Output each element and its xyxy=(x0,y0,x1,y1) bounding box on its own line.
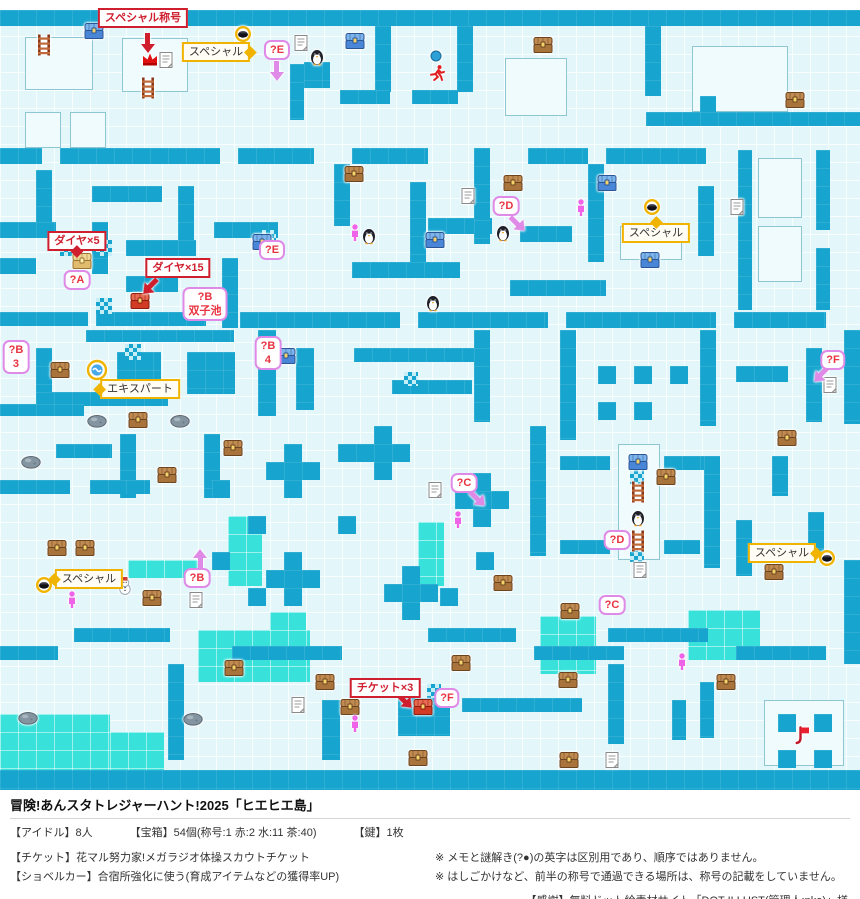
memo-icon xyxy=(429,482,442,498)
person-icon xyxy=(452,511,464,529)
chest-brown-icon xyxy=(76,540,95,557)
ladder-icon xyxy=(631,482,645,503)
maze-wall xyxy=(90,480,150,494)
maze-wall xyxy=(266,462,320,480)
chest-brown-icon xyxy=(657,469,676,486)
footer-left-column: 【チケット】花マル努力家!メガラジオ体操スカウトチケット 【ショベルカー】合宿所… xyxy=(10,846,435,887)
chest-brown-icon xyxy=(345,166,364,183)
callout-label: 4 xyxy=(261,353,276,367)
callout-label: ?B xyxy=(261,339,276,353)
callout-label: スペシャル xyxy=(62,572,116,586)
maze-wall xyxy=(212,552,230,570)
callout-label: ?E xyxy=(265,243,279,257)
chest-blue-icon xyxy=(426,232,445,249)
memo-icon xyxy=(292,697,305,713)
chest-brown-icon xyxy=(129,412,148,429)
callout-pink: ?C xyxy=(599,595,626,615)
maze-wall xyxy=(375,26,391,92)
maze-wall xyxy=(462,698,582,712)
maze-wall xyxy=(646,112,860,126)
callout-label: スペシャル称号 xyxy=(105,11,181,25)
maze-wall xyxy=(634,366,652,384)
maze-wall xyxy=(412,90,458,104)
maze-wall xyxy=(734,312,826,328)
chest-brown-icon xyxy=(51,362,70,379)
callout-pink: ?C xyxy=(451,473,478,493)
stat-key: 【鍵】1枚 xyxy=(354,827,404,839)
callout-pink: ?A xyxy=(64,270,91,290)
callout-label: ?E xyxy=(270,43,284,57)
maze-wall xyxy=(736,646,826,660)
note-2: ※ はしごかけなど、前半の称号で通過できる場所は、称号の記載をしていません。 xyxy=(435,868,850,884)
maze-wall xyxy=(428,628,516,642)
chest-brown-icon xyxy=(341,699,360,716)
callout-label: ?F xyxy=(826,353,839,367)
callout-pink: ?F xyxy=(434,688,459,708)
maze-wall xyxy=(457,26,473,92)
ladder-icon xyxy=(37,35,51,56)
callout-pink: ?B3 xyxy=(3,340,30,374)
footer-notes-column: ※ メモと謎解き(?●)の英字は区別用であり、順序ではありません。 ※ はしごか… xyxy=(435,846,850,887)
chest-brown-icon xyxy=(48,540,67,557)
person-icon xyxy=(676,653,688,671)
chest-brown-icon xyxy=(143,590,162,607)
treasure-map-image: スペシャル称号スペシャル?Eダイヤ×5?Aダイヤ×15?B双子池?E?B3エキス… xyxy=(0,0,860,790)
maze-wall xyxy=(304,62,330,88)
callout-pink: ?E xyxy=(264,40,290,60)
maze-wall xyxy=(60,148,220,164)
runner-icon xyxy=(428,65,446,82)
callout-yellow: スペシャル xyxy=(622,223,690,243)
person-icon xyxy=(349,715,361,733)
maze-wall xyxy=(608,628,708,642)
maze-wall xyxy=(672,700,686,740)
callout-label: ?D xyxy=(610,533,625,547)
maze-wall xyxy=(528,148,588,164)
maze-wall xyxy=(290,64,304,120)
callout-tail xyxy=(244,46,257,59)
expert-icon xyxy=(87,360,108,381)
maze-wall xyxy=(0,480,70,494)
chest-brown-icon xyxy=(316,674,335,691)
outlined-room xyxy=(758,226,802,282)
chest-blue-icon xyxy=(598,175,617,192)
callout-label: ?C xyxy=(605,598,620,612)
maze-wall xyxy=(700,96,716,112)
footer-columns: 【チケット】花マル努力家!メガラジオ体操スカウトチケット 【ショベルカー】合宿所… xyxy=(10,846,850,887)
dot-icon xyxy=(430,50,442,62)
chest-brown-icon xyxy=(494,575,513,592)
callout-label: ?D xyxy=(499,199,514,213)
chest-brown-icon xyxy=(786,92,805,109)
maze-wall xyxy=(560,330,576,440)
callout-pink: ?D xyxy=(604,530,631,550)
maze-wall xyxy=(844,330,860,424)
callout-label: スペシャル xyxy=(755,546,809,560)
callout-label: 3 xyxy=(9,357,24,371)
person-icon xyxy=(575,199,587,217)
callout-label: スペシャル xyxy=(629,226,683,240)
outlined-room xyxy=(25,37,93,90)
callout-yellow: スペシャル xyxy=(182,42,250,62)
maze-wall xyxy=(700,330,716,426)
map-footer: 冒険!あんスタトレジャーハント!2025「ヒエヒエ島」 【アイドル】8人 【宝箱… xyxy=(0,790,860,899)
callout-label: ?B xyxy=(9,343,24,357)
maze-wall xyxy=(520,226,572,242)
callout-red: チケット×3 xyxy=(350,678,421,698)
water-patch xyxy=(540,616,596,674)
maze-wall xyxy=(560,456,610,470)
chest-brown-icon xyxy=(559,672,578,689)
maze-wall xyxy=(440,588,458,606)
chest-brown-icon xyxy=(778,430,797,447)
rock-icon xyxy=(170,414,190,428)
callout-label: ダイヤ×15 xyxy=(152,261,203,275)
chest-brown-icon xyxy=(409,750,428,767)
outlined-room xyxy=(25,112,61,148)
maze-wall xyxy=(0,258,36,274)
maze-wall xyxy=(816,150,830,230)
water-patch xyxy=(0,714,110,770)
note-1: ※ メモと謎解き(?●)の英字は区別用であり、順序ではありません。 xyxy=(435,849,850,865)
maze-wall xyxy=(356,444,410,462)
maze-wall xyxy=(168,664,184,760)
memo-icon xyxy=(634,562,647,578)
person-icon xyxy=(349,224,361,242)
hole-icon xyxy=(233,26,254,42)
chest-brown-icon xyxy=(504,175,523,192)
chest-brown-icon xyxy=(158,467,177,484)
chest-blue-icon xyxy=(641,252,660,269)
crown-icon xyxy=(142,52,159,66)
outlined-room xyxy=(70,112,106,148)
maze-wall xyxy=(238,148,314,164)
callout-pink: ?B双子池 xyxy=(183,287,228,321)
maze-wall xyxy=(248,588,266,606)
rock-icon xyxy=(18,711,38,725)
penguin-icon xyxy=(362,228,376,245)
maze-wall xyxy=(778,750,796,768)
water-patch xyxy=(110,732,164,770)
callout-label: 双子池 xyxy=(189,304,222,318)
maze-wall xyxy=(338,516,356,534)
dither-patch xyxy=(125,344,141,360)
callout-pink: ?B xyxy=(184,568,211,588)
shovel-info: 【ショベルカー】合宿所強化に使う(育成アイテムなどの獲得率UP) xyxy=(10,868,435,884)
maze-wall xyxy=(814,750,832,768)
penguin-icon xyxy=(426,295,440,312)
callout-red: ダイヤ×15 xyxy=(145,258,210,278)
callout-pink: ?F xyxy=(820,350,845,370)
pointer-arrow-down-icon xyxy=(267,59,287,81)
chest-brown-icon xyxy=(717,674,736,691)
maze-wall xyxy=(240,312,400,328)
pointer-arrow-down-icon xyxy=(138,31,158,53)
maze-wall xyxy=(606,148,706,164)
maze-wall xyxy=(598,366,616,384)
callout-label: ダイヤ×5 xyxy=(54,234,99,248)
callout-label: エキスパート xyxy=(107,382,173,396)
person-icon xyxy=(66,591,78,609)
maze-wall xyxy=(352,262,460,278)
maze-wall xyxy=(0,404,84,416)
callout-red: スペシャル称号 xyxy=(98,8,188,28)
ladder-icon xyxy=(141,78,155,99)
maze-wall xyxy=(0,770,860,790)
callout-pink: ?B4 xyxy=(255,336,282,370)
maze-wall xyxy=(704,456,720,568)
maze-wall xyxy=(634,402,652,420)
maze-wall xyxy=(598,402,616,420)
penguin-icon xyxy=(310,49,324,66)
maze-wall xyxy=(664,540,700,554)
maze-wall xyxy=(178,186,194,256)
maze-wall xyxy=(534,646,624,660)
callout-label: チケット×3 xyxy=(357,681,414,695)
maze-wall xyxy=(410,182,426,262)
chest-brown-icon xyxy=(225,660,244,677)
memo-icon xyxy=(606,752,619,768)
maze-wall xyxy=(844,560,860,664)
dither-patch xyxy=(404,372,418,386)
callout-yellow: スペシャル xyxy=(748,543,816,563)
maze-wall xyxy=(608,664,624,744)
callout-label: ?B xyxy=(190,571,205,585)
memo-icon xyxy=(731,199,744,215)
maze-wall xyxy=(187,352,235,394)
maze-wall xyxy=(698,186,714,256)
maze-wall xyxy=(474,330,490,422)
chest-brown-icon xyxy=(560,752,579,769)
chest-brown-icon xyxy=(534,37,553,54)
maze-wall xyxy=(510,280,606,296)
maze-wall xyxy=(36,170,52,222)
stat-idols: 【アイドル】8人 xyxy=(10,827,93,839)
maze-wall xyxy=(0,646,58,660)
maze-wall xyxy=(560,540,610,554)
maze-wall xyxy=(670,366,688,384)
maze-wall xyxy=(266,570,320,588)
callout-pink: ?D xyxy=(493,196,520,216)
water-patch xyxy=(270,612,306,630)
outlined-room xyxy=(505,58,567,116)
chest-blue-icon xyxy=(346,33,365,50)
memo-icon xyxy=(462,188,475,204)
maze-wall xyxy=(474,148,490,244)
callout-red: ダイヤ×5 xyxy=(47,231,106,251)
maze-wall xyxy=(352,148,428,164)
maze-wall xyxy=(248,516,266,534)
callout-label: ?F xyxy=(440,691,453,705)
water-patch xyxy=(418,522,444,586)
rock-icon xyxy=(21,455,41,469)
callout-yellow: スペシャル xyxy=(55,569,123,589)
memo-icon xyxy=(295,35,308,51)
maze-wall xyxy=(476,552,494,570)
rock-icon xyxy=(87,414,107,428)
ladder-icon xyxy=(631,531,645,552)
callout-label: ?A xyxy=(70,273,85,287)
chest-brown-icon xyxy=(224,440,243,457)
callout-label: ?C xyxy=(457,476,472,490)
maze-wall xyxy=(86,330,234,342)
callout-yellow: エキスパート xyxy=(100,379,180,399)
chest-brown-icon xyxy=(452,655,471,672)
maze-wall xyxy=(700,682,714,738)
maze-wall xyxy=(814,714,832,732)
credit-line: 【感謝】無料ドット絵素材サイト「DOT ILLUST(管理人:nko)」様 xyxy=(10,892,850,899)
maze-wall xyxy=(738,150,752,310)
maze-wall xyxy=(56,444,112,458)
maze-wall xyxy=(322,700,340,760)
maze-wall xyxy=(384,584,438,602)
maze-wall xyxy=(530,426,546,556)
stat-chests: 【宝箱】54個(称号:1 赤:2 水:11 茶:40) xyxy=(130,827,317,839)
map-stats: 【アイドル】8人 【宝箱】54個(称号:1 赤:2 水:11 茶:40) 【鍵】… xyxy=(10,819,850,842)
maze-wall xyxy=(212,480,230,498)
chest-brown-icon xyxy=(561,603,580,620)
chest-blue-icon xyxy=(629,454,648,471)
maze-wall xyxy=(354,348,474,362)
maze-wall xyxy=(340,90,390,104)
maze-wall xyxy=(645,26,661,96)
ticket-info: 【チケット】花マル努力家!メガラジオ体操スカウトチケット xyxy=(10,849,435,865)
callout-label: ?B xyxy=(189,290,222,304)
maze-wall xyxy=(772,456,788,496)
maze-wall xyxy=(816,248,830,310)
map-title: 冒険!あんスタトレジャーハント!2025「ヒエヒエ島」 xyxy=(10,793,850,819)
memo-icon xyxy=(190,592,203,608)
maze-wall xyxy=(418,312,548,328)
maze-wall xyxy=(736,366,788,382)
dither-patch xyxy=(96,298,112,314)
maze-wall xyxy=(74,628,170,642)
flag-icon xyxy=(793,726,811,746)
memo-icon xyxy=(160,52,173,68)
maze-wall xyxy=(338,444,356,462)
callout-pink: ?E xyxy=(259,240,285,260)
outlined-room xyxy=(758,158,802,218)
hole-icon xyxy=(642,199,663,215)
callout-label: スペシャル xyxy=(189,45,243,59)
rock-icon xyxy=(183,712,203,726)
penguin-icon xyxy=(631,510,645,527)
chest-brown-icon xyxy=(765,564,784,581)
maze-wall xyxy=(0,312,88,326)
maze-wall xyxy=(566,312,716,328)
maze-wall xyxy=(296,348,314,410)
maze-wall xyxy=(92,186,162,202)
maze-wall xyxy=(0,148,42,164)
maze-wall xyxy=(232,646,342,660)
